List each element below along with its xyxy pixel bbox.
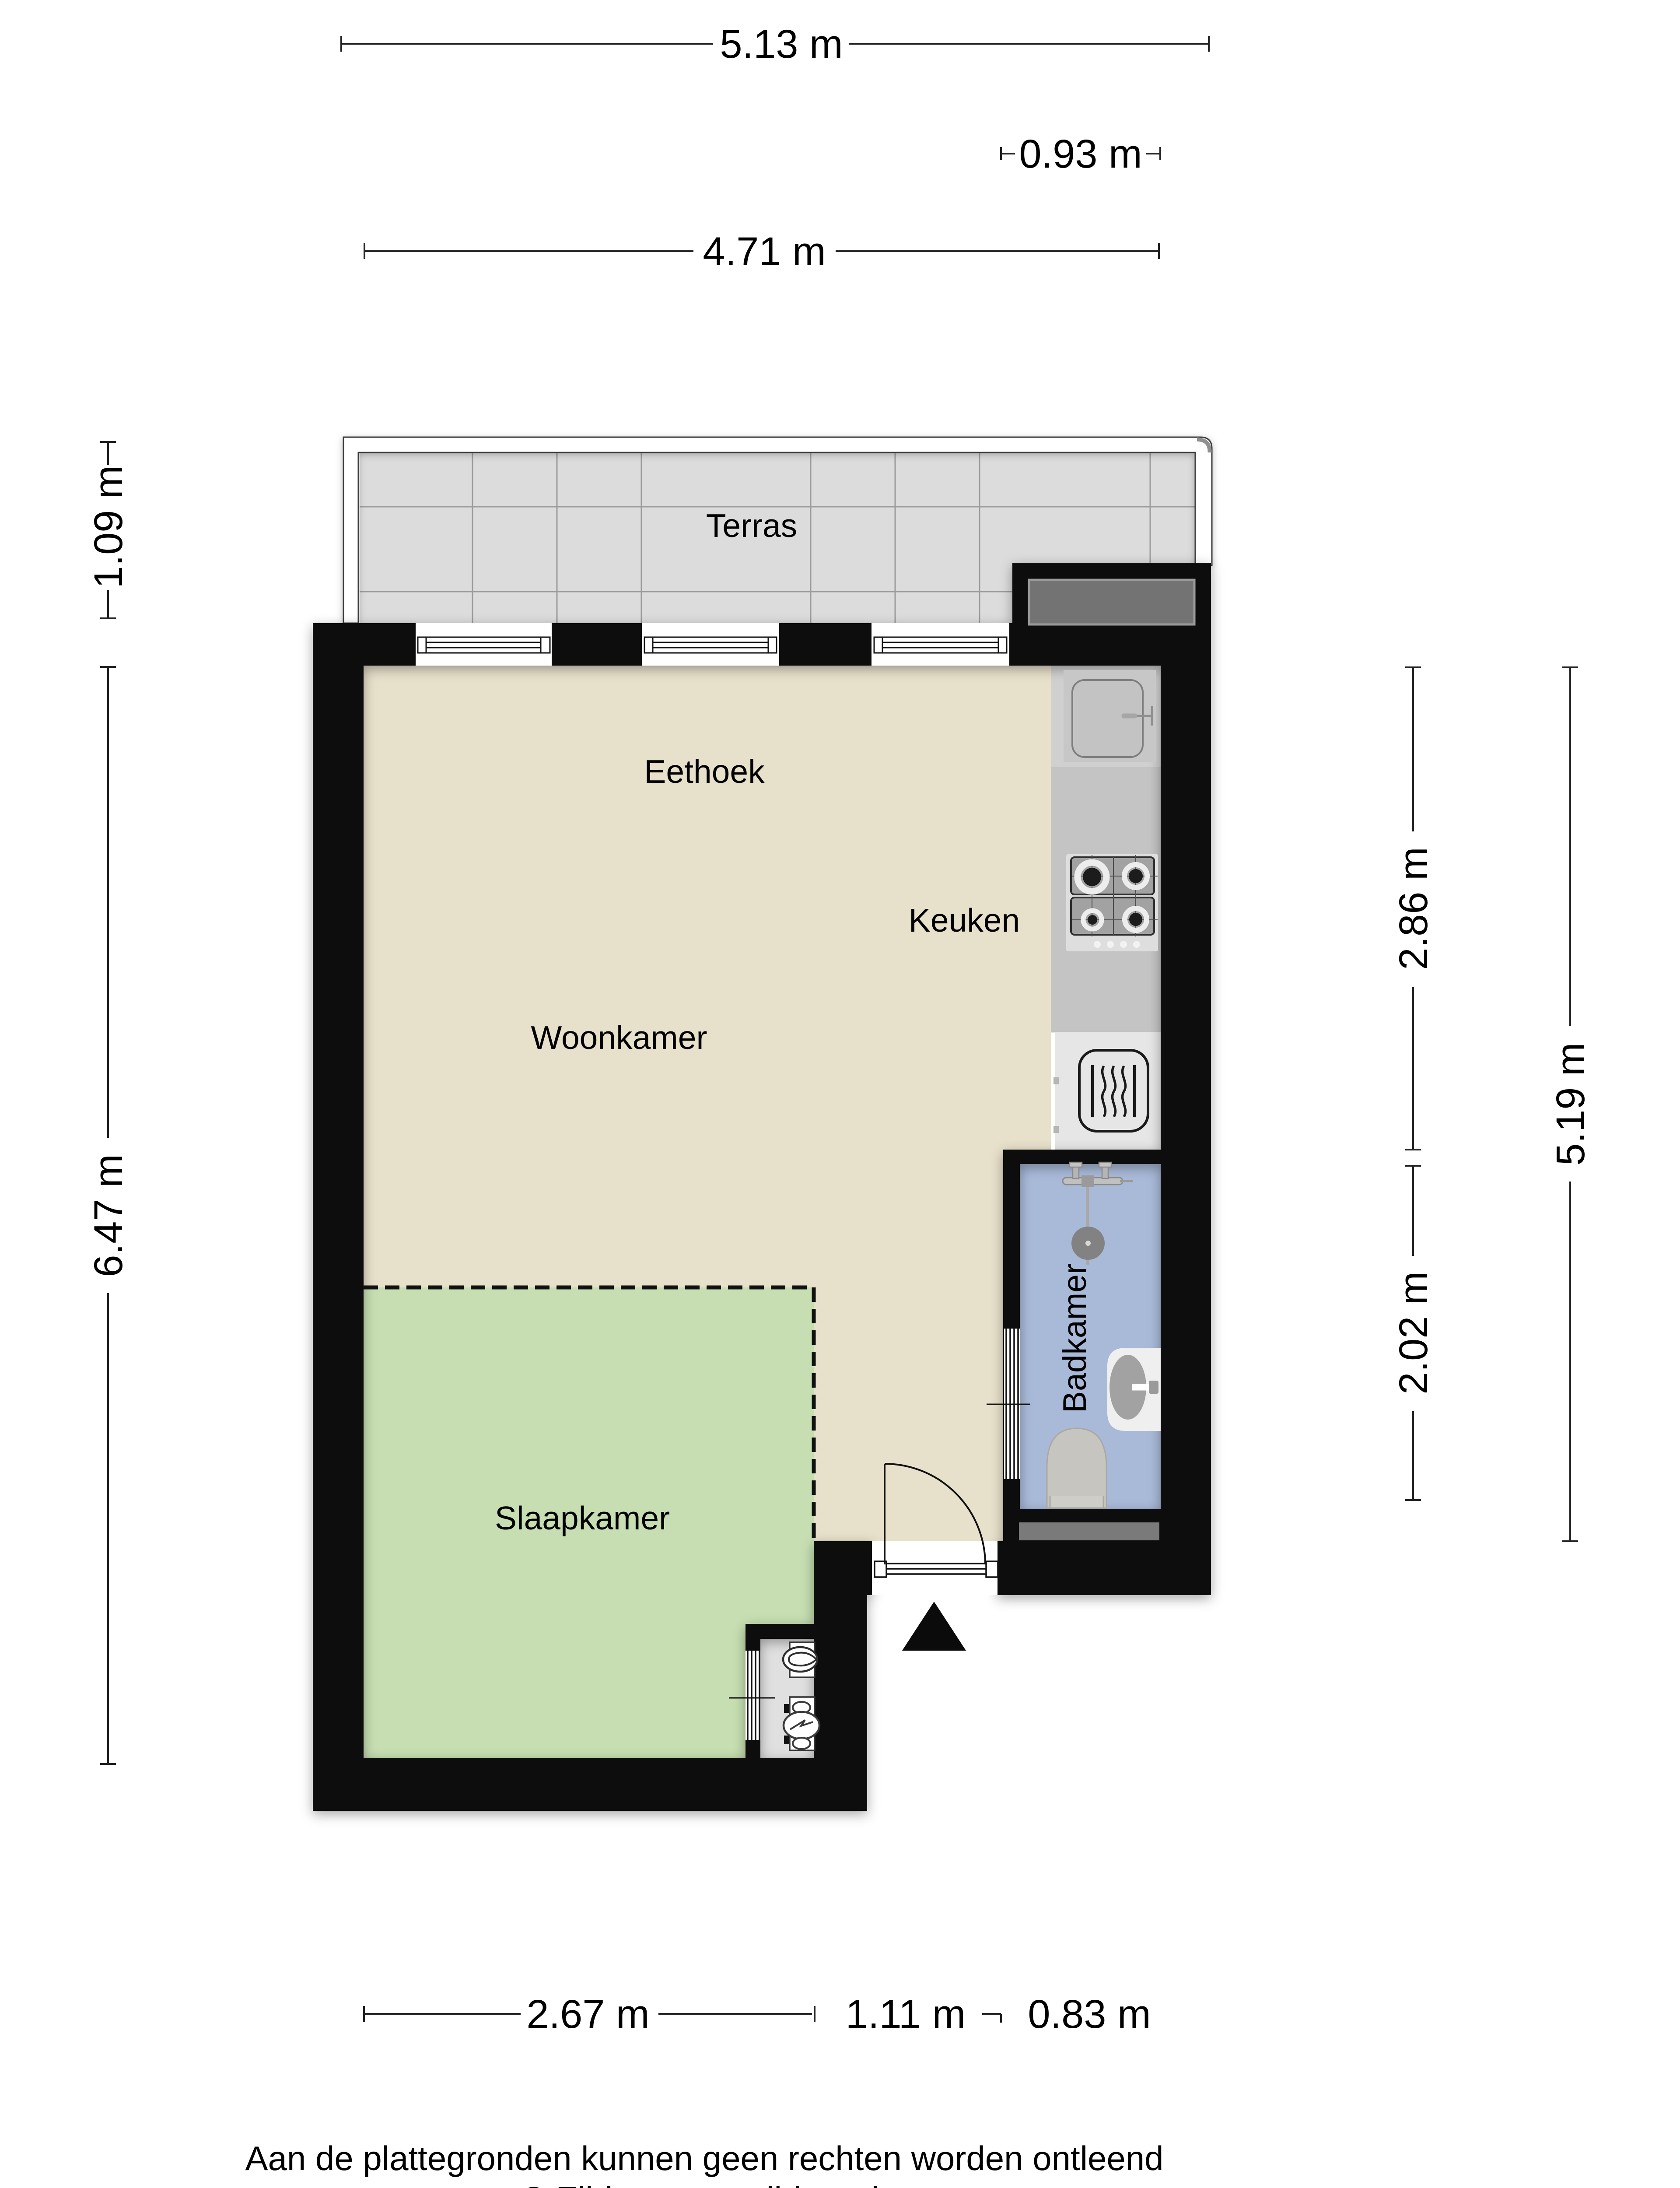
svg-text:© Zibber www.zibber.nl: © Zibber www.zibber.nl <box>521 2180 879 2188</box>
svg-text:Slaapkamer: Slaapkamer <box>495 1500 670 1536</box>
svg-text:2.86 m: 2.86 m <box>1391 847 1436 970</box>
svg-text:2.02 m: 2.02 m <box>1391 1271 1436 1394</box>
svg-text:Eethoek: Eethoek <box>644 753 765 790</box>
svg-text:Aan de plattegronden kunnen ge: Aan de plattegronden kunnen geen rechten… <box>245 2139 1164 2177</box>
svg-text:6.47 m: 6.47 m <box>86 1154 131 1277</box>
svg-text:Terras: Terras <box>706 507 797 544</box>
svg-text:1.09 m: 1.09 m <box>86 465 131 588</box>
svg-text:Keuken: Keuken <box>909 902 1020 939</box>
svg-text:2.67 m: 2.67 m <box>526 1992 649 2037</box>
svg-text:5.13 m: 5.13 m <box>720 22 843 67</box>
svg-text:Badkamer: Badkamer <box>1056 1263 1093 1413</box>
svg-text:1.11 m: 1.11 m <box>846 1992 966 2037</box>
svg-text:5.19 m: 5.19 m <box>1548 1042 1593 1165</box>
svg-text:0.83 m: 0.83 m <box>1028 1992 1151 2037</box>
svg-text:0.93 m: 0.93 m <box>1019 132 1142 176</box>
svg-text:Woonkamer: Woonkamer <box>531 1019 707 1056</box>
svg-text:4.71 m: 4.71 m <box>703 229 826 274</box>
